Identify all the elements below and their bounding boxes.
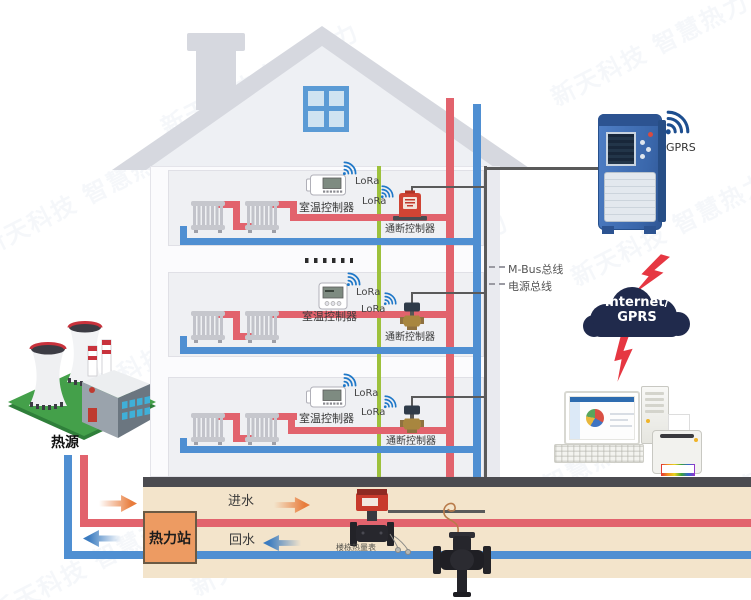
gprs-wifi-icon [664, 108, 692, 136]
concentrator-button [640, 154, 645, 159]
monitor-icon [564, 391, 640, 445]
lora-label: LoRa [361, 304, 385, 316]
more-floors-ellipsis [305, 258, 353, 263]
heat-meter-label: 楼栋热量表 [336, 542, 376, 553]
concentrator-button [640, 140, 645, 145]
mbus-line-vertical [484, 166, 487, 513]
concentrator-mount [644, 226, 656, 234]
radiator-icon [245, 310, 279, 344]
gprs-label: GPRS [666, 142, 696, 155]
mbus-drop [411, 292, 485, 294]
leader-line [489, 283, 505, 285]
pipe [288, 427, 454, 434]
mbus-drop [411, 396, 485, 398]
thermostat-label: 室温控制器 [302, 311, 357, 324]
return-water-label: 回水 [229, 534, 255, 549]
thermostat-icon [318, 282, 348, 310]
balancing-valve-icon [433, 530, 491, 598]
thermostat-label: 室温控制器 [299, 413, 354, 426]
concentrator-button [646, 147, 651, 152]
thermostat-icon [306, 174, 346, 196]
lora-label: LoRa [362, 196, 386, 208]
pipe [64, 551, 145, 559]
mbus-label: M-Bus总线 [508, 261, 563, 277]
thermostat-label: 室温控制器 [299, 202, 354, 215]
printer-icon [652, 424, 702, 482]
concentrator-screen [606, 132, 636, 166]
valve-label: 通断控制器 [386, 436, 436, 448]
supply-water-label: 进水 [228, 495, 254, 510]
lora-wifi-icon [342, 160, 358, 176]
ground-strip [143, 477, 751, 487]
attic-window [303, 86, 349, 132]
capillary-tube-icon [436, 500, 466, 534]
lora-label: LoRa [361, 407, 385, 419]
mbus-line-to-concentrator [486, 167, 598, 170]
heat-source-plant [8, 316, 156, 442]
valve-label: 通断控制器 [385, 332, 435, 344]
flow-arrow-supply [99, 495, 137, 512]
supply-main-pipe [197, 519, 751, 527]
lora-wifi-icon [342, 372, 358, 388]
pipe [180, 238, 481, 245]
power-bus-label: 电源总线 [508, 278, 552, 294]
concentrator-label-panel [604, 172, 656, 222]
keyboard-icon [554, 444, 644, 463]
on-off-valve-icon [400, 405, 424, 434]
flow-arrow-return [83, 530, 121, 547]
radiator-icon [245, 412, 279, 446]
pipe [80, 455, 88, 527]
pipe [290, 214, 454, 221]
thermostat-icon [306, 386, 346, 408]
meter-sensor-icon [386, 532, 414, 558]
pipe [64, 455, 72, 559]
pipe [80, 519, 145, 527]
on-off-valve-icon [392, 190, 428, 221]
valve-label: 通断控制器 [385, 224, 435, 236]
leader-line [489, 266, 505, 268]
concentrator-top [598, 114, 660, 126]
heat-source-label: 热源 [30, 435, 100, 451]
house-right-wall [486, 166, 500, 477]
heat-station-box: 热力站 [143, 511, 197, 564]
cloud-label-line1: Internet/ [582, 295, 692, 310]
radiator-icon [191, 310, 225, 344]
pipe [180, 347, 481, 354]
on-off-valve-icon [400, 302, 424, 331]
radiator-icon [191, 412, 225, 446]
lora-label: LoRa [354, 388, 378, 400]
watermark: 新天科技 智慧热力 [544, 0, 751, 113]
lora-label: LoRa [355, 176, 379, 188]
lora-wifi-icon [346, 271, 362, 287]
concentrator-mount [602, 226, 614, 234]
radiator-icon [191, 200, 225, 234]
radiator-icon [245, 200, 279, 234]
mbus-drop [411, 186, 485, 188]
lora-label: LoRa [356, 287, 380, 299]
concentrator-led [648, 132, 653, 137]
heating-system-diagram: 新天科技 智慧热力 新天科技 智慧热力 新天科技 智慧热力 新天科技 智慧热力 … [0, 0, 751, 600]
cloud-label-line2: GPRS [582, 310, 692, 325]
